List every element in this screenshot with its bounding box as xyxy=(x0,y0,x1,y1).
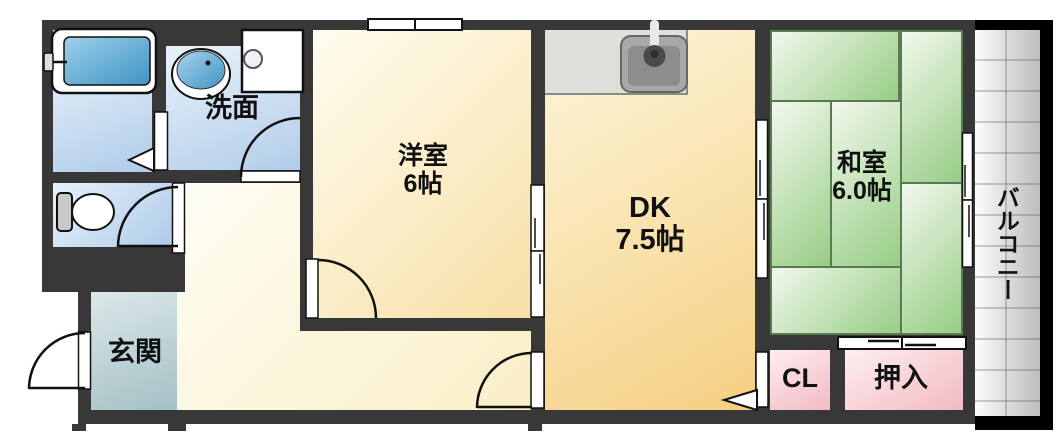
wall-bath-washroom xyxy=(152,20,166,182)
wall-washroom-top xyxy=(166,28,242,46)
kitchen-counter xyxy=(545,30,688,95)
balcony-floor xyxy=(975,30,1040,416)
wall-left xyxy=(42,20,53,253)
bathroom-floor xyxy=(53,30,152,172)
wall-japanese-room-right xyxy=(963,20,975,415)
toilet-room-floor xyxy=(53,183,172,247)
wall-japanese-room-bottom xyxy=(755,335,968,350)
wall-dk-right xyxy=(755,20,770,410)
wall-toilet-right xyxy=(172,178,185,255)
western-room-floor xyxy=(313,30,531,318)
entrance-floor xyxy=(91,290,177,410)
wall-tab xyxy=(168,424,186,431)
balcony-wall-bottom xyxy=(975,416,1053,430)
tatami-mat xyxy=(770,266,902,335)
wall-tab xyxy=(72,424,86,431)
oshiire-floor xyxy=(845,350,963,410)
tatami-mat xyxy=(770,100,832,268)
tatami-mat xyxy=(900,182,963,335)
wall-tab xyxy=(528,424,542,431)
closet-floor xyxy=(770,350,830,410)
wall-block-toilet-bottom xyxy=(42,247,185,292)
wall-western-room-left xyxy=(300,20,313,331)
wall-closet-divider xyxy=(830,350,845,410)
washroom-floor xyxy=(166,30,300,170)
wall-entrance-left xyxy=(78,283,91,414)
wall-dk-left xyxy=(531,20,545,413)
balcony-wall-right xyxy=(1040,20,1053,430)
wall-bath-toilet xyxy=(42,172,172,183)
wall-washroom-bottom xyxy=(166,170,313,183)
wall-bottom xyxy=(78,410,975,424)
wall-western-room-bottom xyxy=(300,318,545,331)
floor-plan: 洗面 玄関 洋室 6帖 DK 7.5帖 和室 6.0帖 CL 押入 バルコニー xyxy=(0,0,1062,438)
tatami-mat xyxy=(900,30,963,184)
tatami-mat xyxy=(830,100,902,268)
tatami-mat xyxy=(770,30,900,102)
japanese-room-floor xyxy=(770,30,963,335)
